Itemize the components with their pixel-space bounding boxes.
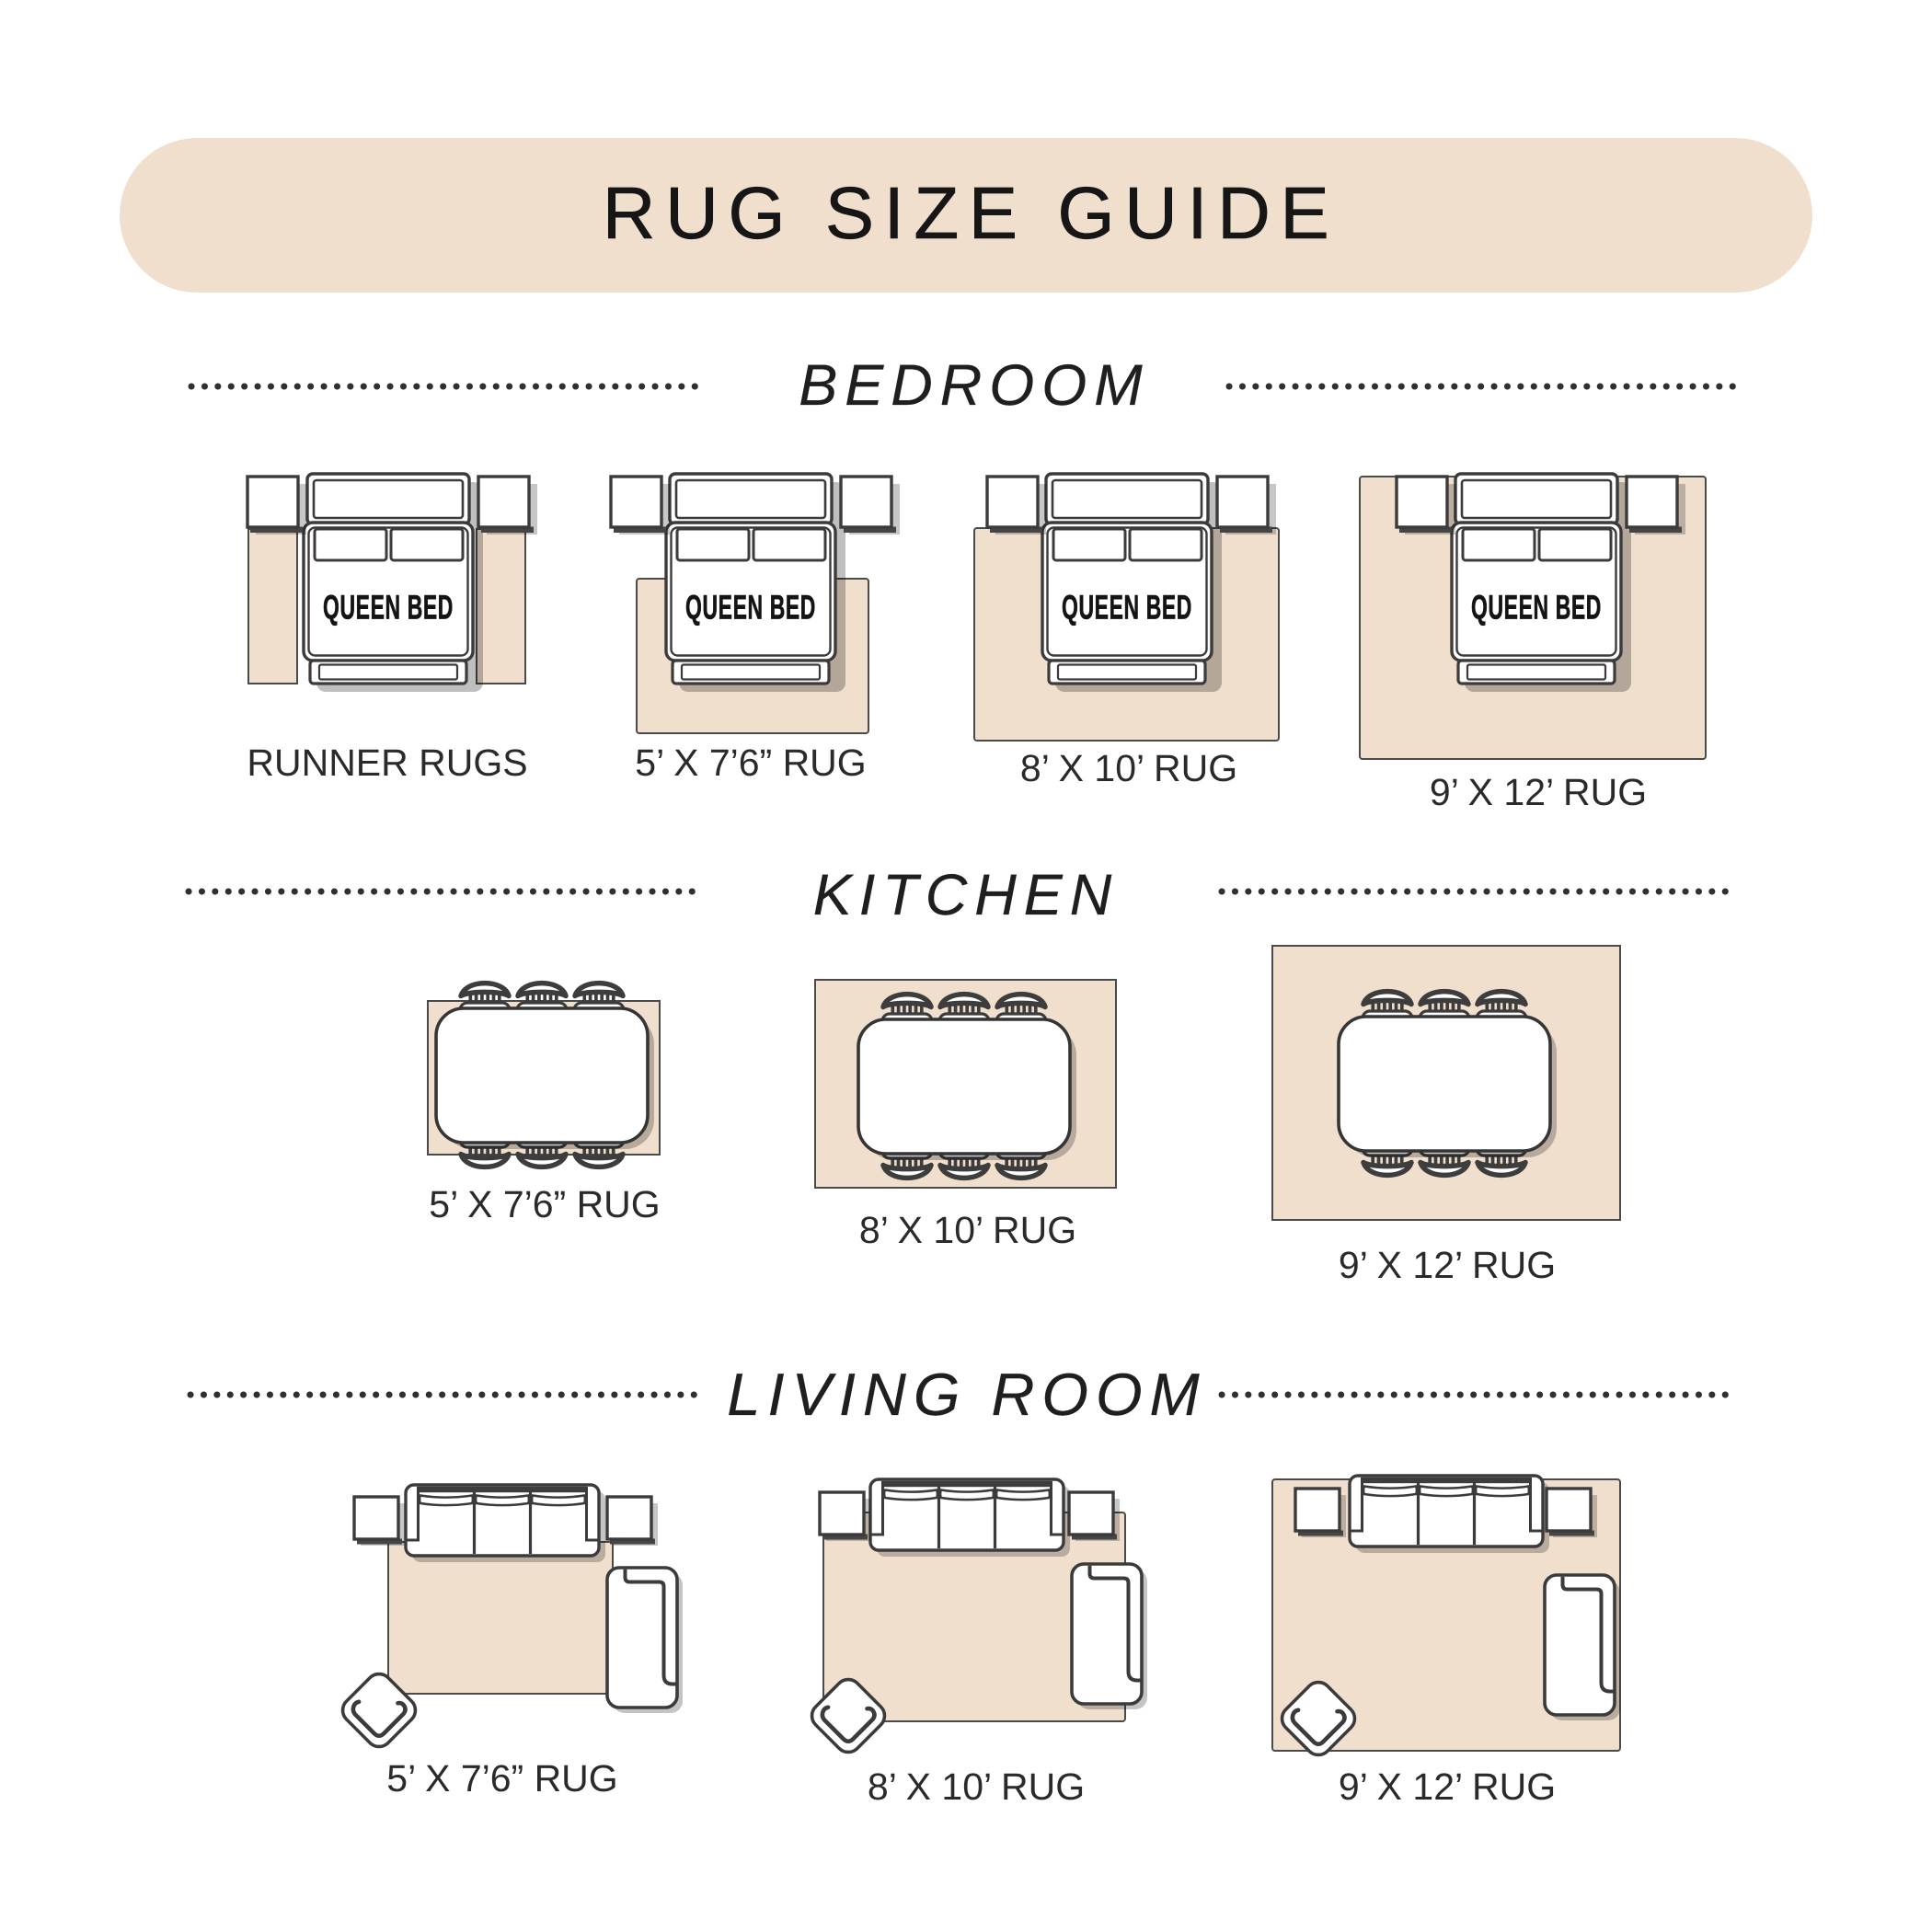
svg-text:9’ X 12’ RUG: 9’ X 12’ RUG: [1339, 1244, 1556, 1286]
svg-text:5’ X 7’6” RUG: 5’ X 7’6” RUG: [429, 1183, 660, 1225]
svg-text:RUG SIZE GUIDE: RUG SIZE GUIDE: [603, 172, 1339, 254]
svg-text:5’ X 7’6” RUG: 5’ X 7’6” RUG: [635, 742, 866, 784]
svg-text:9’ X 12’ RUG: 9’ X 12’ RUG: [1430, 771, 1647, 813]
svg-text:9’ X 12’ RUG: 9’ X 12’ RUG: [1339, 1765, 1556, 1808]
svg-text:LIVING ROOM: LIVING ROOM: [727, 1361, 1206, 1428]
svg-text:8’ X 10’ RUG: 8’ X 10’ RUG: [859, 1209, 1076, 1251]
svg-text:RUNNER RUGS: RUNNER RUGS: [247, 742, 527, 784]
svg-text:KITCHEN: KITCHEN: [813, 863, 1120, 927]
svg-text:BEDROOM: BEDROOM: [799, 353, 1150, 418]
svg-text:8’ X 10’ RUG: 8’ X 10’ RUG: [868, 1765, 1085, 1808]
svg-text:8’ X 10’ RUG: 8’ X 10’ RUG: [1020, 747, 1237, 789]
svg-text:5’ X 7’6” RUG: 5’ X 7’6” RUG: [386, 1757, 617, 1800]
